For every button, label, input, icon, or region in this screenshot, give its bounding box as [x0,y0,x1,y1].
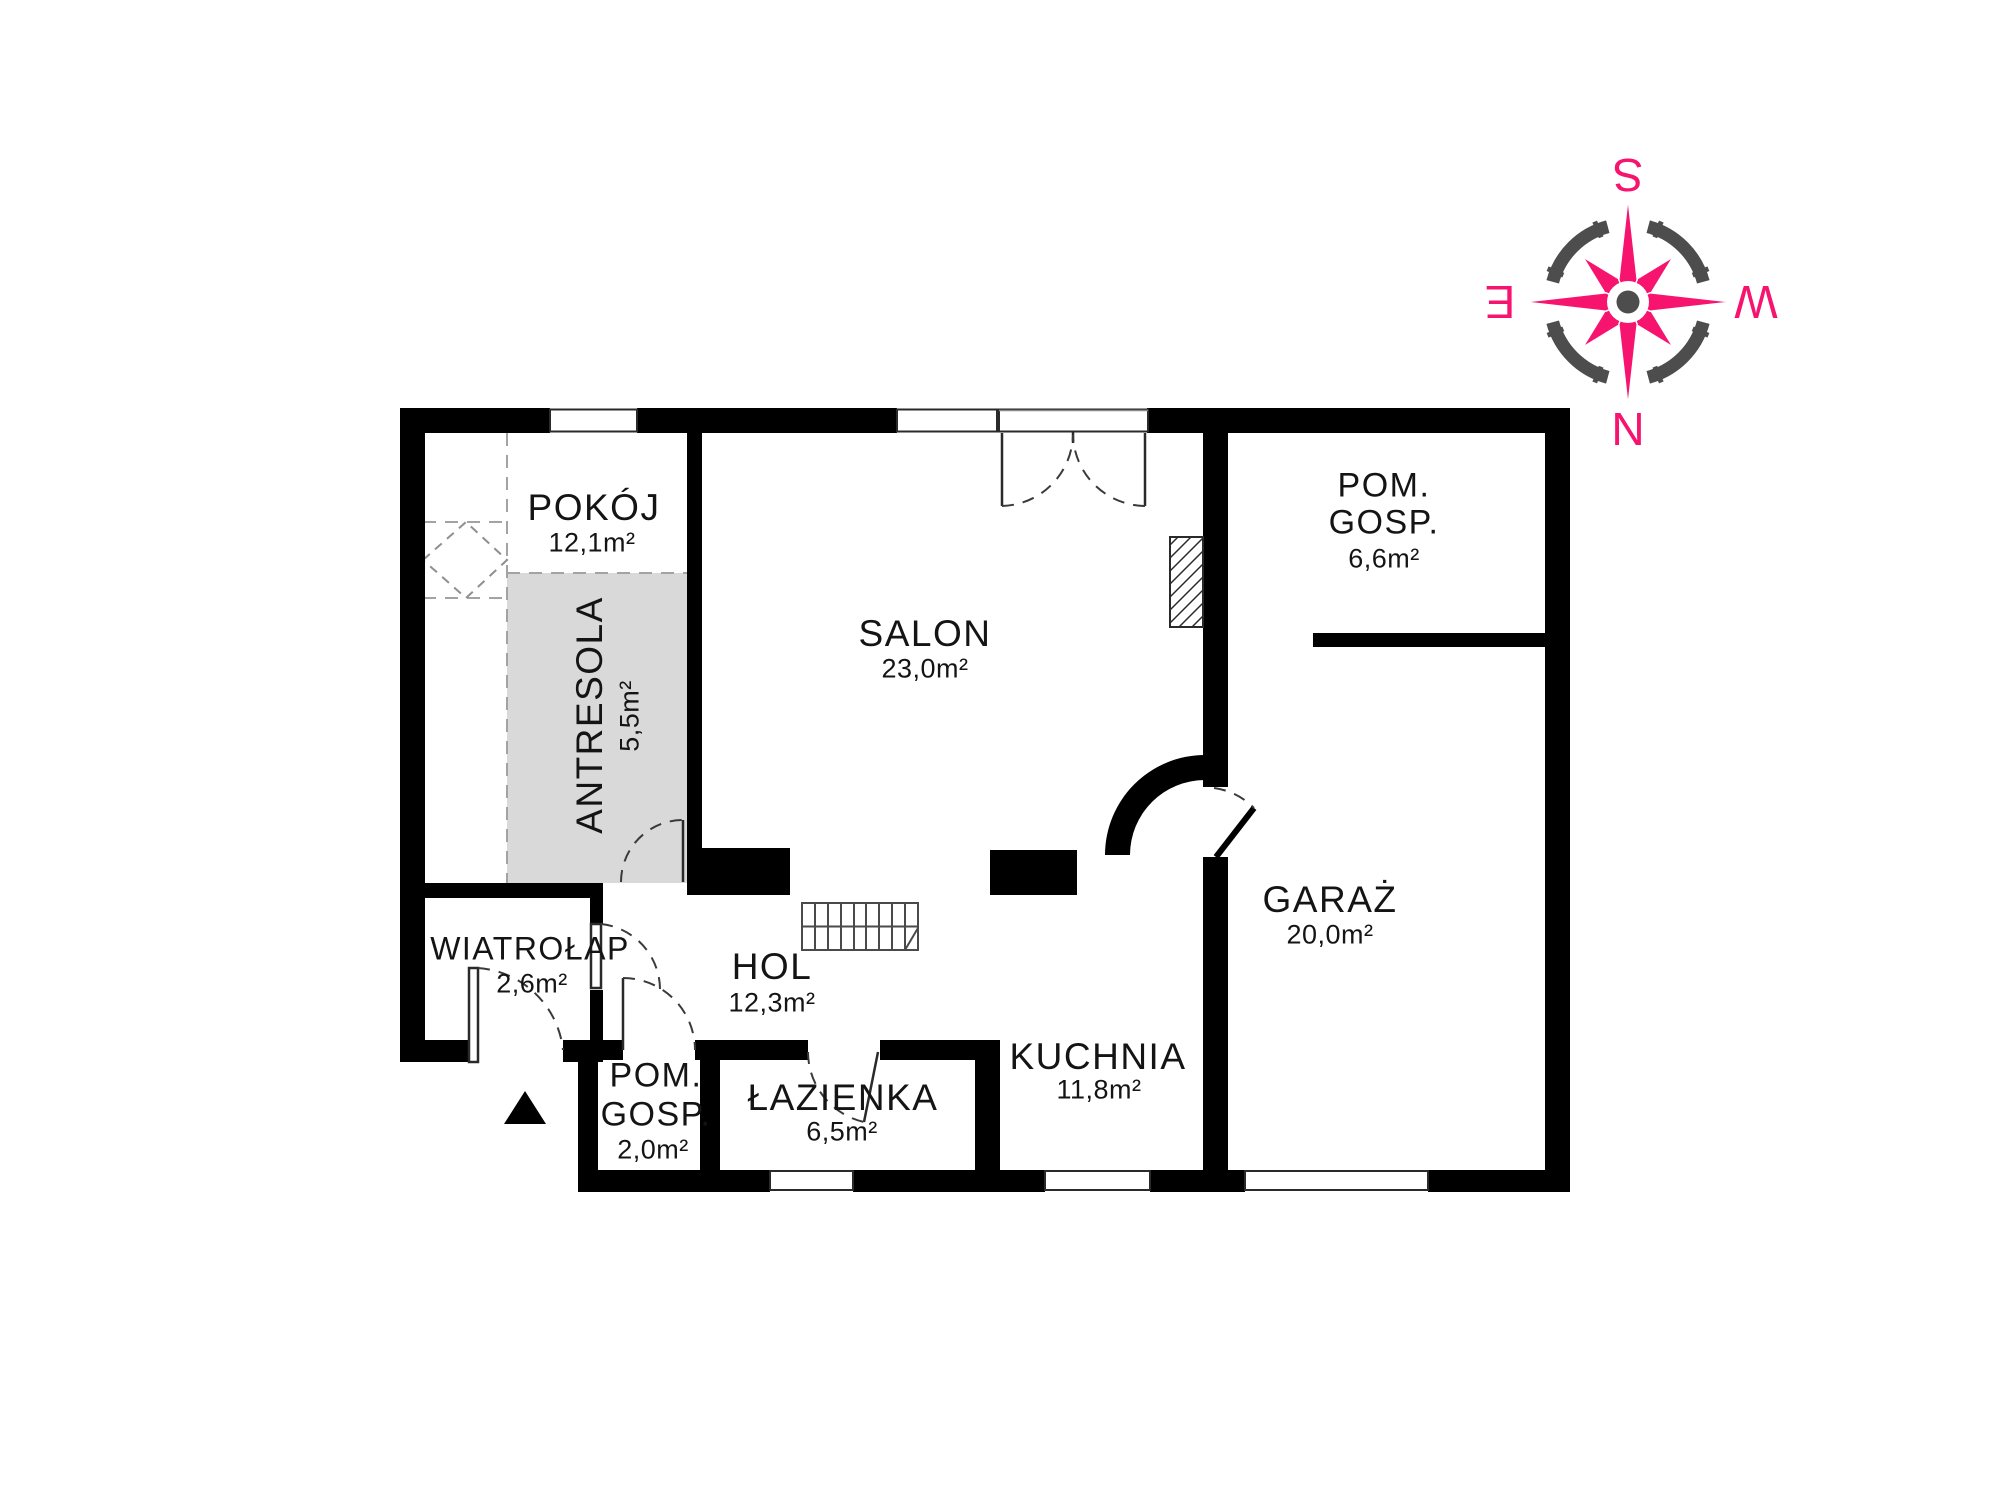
floor-plan-drawing: N E S W [0,0,2000,1500]
room-area-salon: 23,0m² [881,654,968,685]
garage-door-leaf [1216,808,1254,857]
chimney-hatch-symbol [1170,537,1203,627]
compass-hub-dot [1617,291,1640,314]
ceiling-diamond-symbol [423,522,507,598]
room-area-pokoj: 12,1m² [548,528,635,559]
compass-north-label: N [1611,403,1644,455]
room-label-lazienka: ŁAZIENKA [748,1077,939,1119]
compass-west-label: W [1734,276,1778,328]
compass-east-label: E [1485,276,1516,328]
room-area-lazienka: 6,5m² [806,1117,878,1148]
room-label-antresola: ANTRESOLA [569,596,611,834]
window-symbol [1045,1171,1150,1190]
room-label-salon: SALON [859,613,992,655]
room-label-pom-gosp-small-line1: POM. [610,1057,703,1096]
room-label-hol: HOL [732,946,813,988]
window-symbol [897,410,997,432]
floor-plan-page: N E S W POKÓJ 12,1m² ANTRESOLA 5,5m² SAL… [0,0,2000,1500]
french-door-frame [999,410,1148,432]
room-label-wiatrolap: WIATROŁAP [430,931,630,968]
room-area-wiatrolap: 2,6m² [496,969,568,1000]
room-label-kuchnia: KUCHNIA [1009,1036,1186,1078]
room-label-pom-gosp-top-line2: GOSP. [1329,504,1440,543]
door-swing [1214,788,1254,808]
stairs-symbol [802,903,918,950]
window-symbol [1245,1171,1428,1190]
entrance-arrow-icon [504,1091,546,1124]
room-label-pom-gosp-top-line1: POM. [1338,467,1431,506]
window-symbol [770,1171,853,1190]
room-area-hol: 12,3m² [728,988,815,1019]
entry-door-leaf [469,968,478,1062]
room-area-pom-gosp-small: 2,0m² [617,1135,689,1166]
door-swing [1002,435,1073,506]
compass-south-label: S [1613,149,1644,201]
door-swing [1073,435,1145,506]
room-label-pokoj: POKÓJ [528,487,661,529]
room-label-pom-gosp-small-line2: GOSP. [601,1096,712,1135]
room-area-garaz: 20,0m² [1286,920,1373,951]
room-area-kuchnia: 11,8m² [1056,1075,1141,1106]
room-area-pom-gosp-top: 6,6m² [1348,544,1420,575]
room-area-antresola: 5,5m² [615,680,646,752]
window-symbol [550,410,637,432]
room-label-garaz: GARAŻ [1263,879,1398,921]
